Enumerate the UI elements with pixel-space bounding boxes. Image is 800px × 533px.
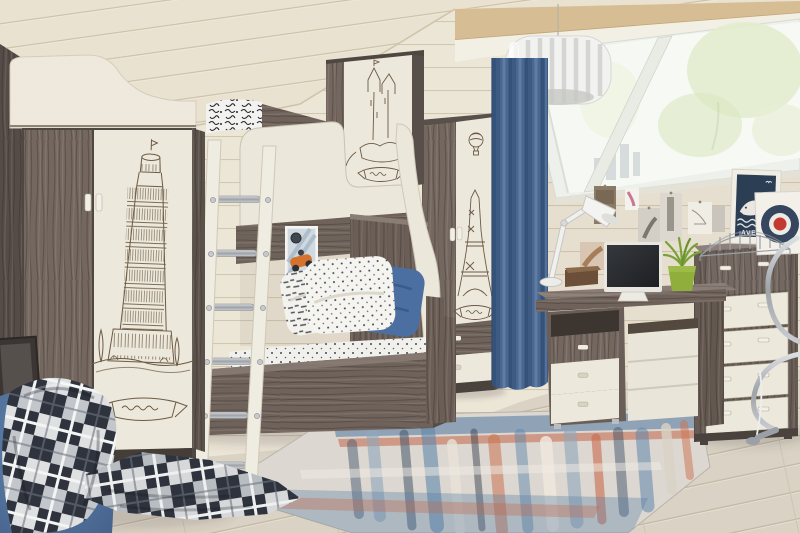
desk-pedestal [546, 307, 626, 429]
curtain [492, 58, 548, 390]
bedroom-photo: AVE [0, 0, 800, 533]
target-poster [755, 191, 800, 255]
wooden-box [565, 266, 601, 287]
desk [536, 283, 737, 429]
